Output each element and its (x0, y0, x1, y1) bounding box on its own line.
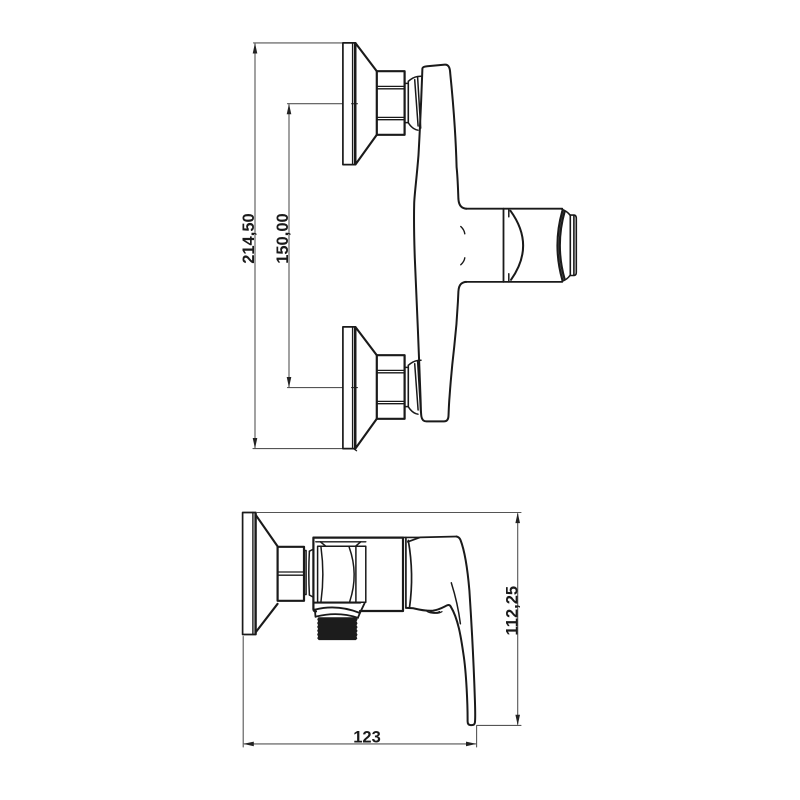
svg-text:112,25: 112,25 (503, 586, 521, 636)
svg-text:123: 123 (353, 728, 381, 746)
svg-text:150,00: 150,00 (274, 213, 292, 263)
svg-text:214,50: 214,50 (240, 213, 258, 263)
